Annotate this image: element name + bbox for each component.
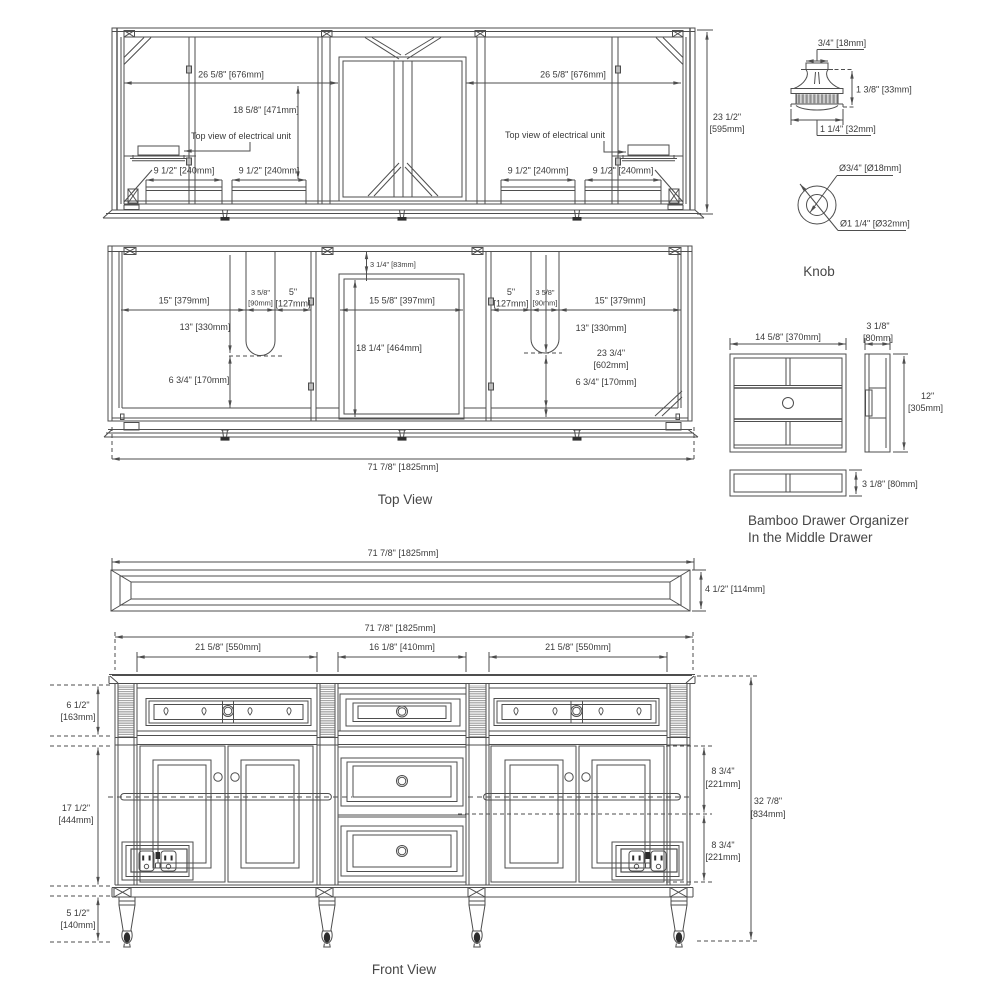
- svg-text:Top View: Top View: [378, 492, 433, 507]
- svg-text:26 5/8" [676mm]: 26 5/8" [676mm]: [198, 70, 264, 80]
- svg-text:5 1/2": 5 1/2": [66, 908, 89, 918]
- svg-text:[305mm]: [305mm]: [908, 403, 943, 413]
- svg-text:3 5/8": 3 5/8": [535, 288, 554, 297]
- svg-text:6 3/4" [170mm]: 6 3/4" [170mm]: [576, 377, 637, 387]
- svg-text:Top view of electrical unit: Top view of electrical unit: [191, 131, 292, 141]
- svg-text:13" [330mm]: 13" [330mm]: [180, 322, 231, 332]
- svg-text:[602mm]: [602mm]: [593, 360, 628, 370]
- svg-text:[163mm]: [163mm]: [60, 712, 95, 722]
- svg-text:3/4" [18mm]: 3/4" [18mm]: [818, 38, 866, 48]
- svg-text:17 1/2": 17 1/2": [62, 803, 90, 813]
- svg-text:[140mm]: [140mm]: [60, 920, 95, 930]
- svg-text:15" [379mm]: 15" [379mm]: [595, 296, 646, 306]
- svg-text:[90mm]: [90mm]: [533, 299, 558, 308]
- svg-text:1 3/8" [33mm]: 1 3/8" [33mm]: [856, 85, 912, 95]
- svg-text:9 1/2" [240mm]: 9 1/2" [240mm]: [239, 166, 300, 176]
- svg-text:9 1/2" [240mm]: 9 1/2" [240mm]: [154, 166, 215, 176]
- svg-text:14 5/8" [370mm]: 14 5/8" [370mm]: [755, 332, 821, 342]
- svg-text:18 5/8" [471mm]: 18 5/8" [471mm]: [233, 105, 299, 115]
- svg-text:[444mm]: [444mm]: [58, 815, 93, 825]
- svg-text:8 3/4": 8 3/4": [711, 840, 734, 850]
- svg-text:[221mm]: [221mm]: [705, 852, 740, 862]
- svg-text:32 7/8": 32 7/8": [754, 796, 782, 806]
- svg-text:8 3/4": 8 3/4": [711, 766, 734, 776]
- svg-text:3 1/8": 3 1/8": [866, 321, 889, 331]
- svg-text:9 1/2" [240mm]: 9 1/2" [240mm]: [508, 166, 569, 176]
- svg-text:6 1/2": 6 1/2": [66, 700, 89, 710]
- svg-text:In the Middle Drawer: In the Middle Drawer: [748, 530, 873, 545]
- svg-text:9 1/2" [240mm]: 9 1/2" [240mm]: [593, 166, 654, 176]
- svg-text:[595mm]: [595mm]: [709, 124, 744, 134]
- svg-text:[834mm]: [834mm]: [750, 809, 785, 819]
- svg-text:23 3/4": 23 3/4": [597, 348, 625, 358]
- svg-text:5": 5": [507, 287, 515, 297]
- svg-text:[80mm]: [80mm]: [863, 333, 893, 343]
- svg-text:16 1/8" [410mm]: 16 1/8" [410mm]: [369, 642, 435, 652]
- svg-text:[90mm]: [90mm]: [248, 299, 273, 308]
- svg-text:3 5/8": 3 5/8": [251, 288, 270, 297]
- svg-text:Top view of electrical unit: Top view of electrical unit: [505, 130, 606, 140]
- svg-text:3 1/8" [80mm]: 3 1/8" [80mm]: [862, 479, 918, 489]
- svg-text:21 5/8" [550mm]: 21 5/8" [550mm]: [195, 642, 261, 652]
- svg-text:5": 5": [289, 287, 297, 297]
- svg-text:Knob: Knob: [803, 264, 835, 279]
- svg-text:[127mm]: [127mm]: [493, 299, 528, 309]
- svg-text:23 1/2": 23 1/2": [713, 112, 741, 122]
- svg-text:71 7/8" [1825mm]: 71 7/8" [1825mm]: [368, 548, 439, 558]
- svg-text:Ø3/4" [Ø18mm]: Ø3/4" [Ø18mm]: [839, 163, 901, 173]
- svg-text:[127mm]: [127mm]: [275, 299, 310, 309]
- svg-text:12": 12": [921, 391, 934, 401]
- svg-text:71 7/8" [1825mm]: 71 7/8" [1825mm]: [368, 462, 439, 472]
- svg-text:26 5/8" [676mm]: 26 5/8" [676mm]: [540, 70, 606, 80]
- svg-text:13" [330mm]: 13" [330mm]: [576, 323, 627, 333]
- svg-text:Front View: Front View: [372, 962, 437, 977]
- svg-text:4 1/2" [114mm]: 4 1/2" [114mm]: [705, 584, 765, 594]
- svg-text:21 5/8" [550mm]: 21 5/8" [550mm]: [545, 642, 611, 652]
- svg-text:18 1/4" [464mm]: 18 1/4" [464mm]: [356, 343, 422, 353]
- svg-text:15 5/8" [397mm]: 15 5/8" [397mm]: [369, 296, 435, 306]
- svg-text:15" [379mm]: 15" [379mm]: [159, 296, 210, 306]
- svg-text:Ø1 1/4" [Ø32mm]: Ø1 1/4" [Ø32mm]: [840, 219, 910, 229]
- svg-text:1 1/4" [32mm]: 1 1/4" [32mm]: [820, 124, 876, 134]
- svg-text:Bamboo Drawer Organizer: Bamboo Drawer Organizer: [748, 513, 909, 528]
- svg-text:[221mm]: [221mm]: [705, 779, 740, 789]
- svg-text:71 7/8" [1825mm]: 71 7/8" [1825mm]: [365, 623, 436, 633]
- svg-text:3 1/4" [83mm]: 3 1/4" [83mm]: [370, 260, 416, 269]
- svg-text:6 3/4" [170mm]: 6 3/4" [170mm]: [169, 375, 230, 385]
